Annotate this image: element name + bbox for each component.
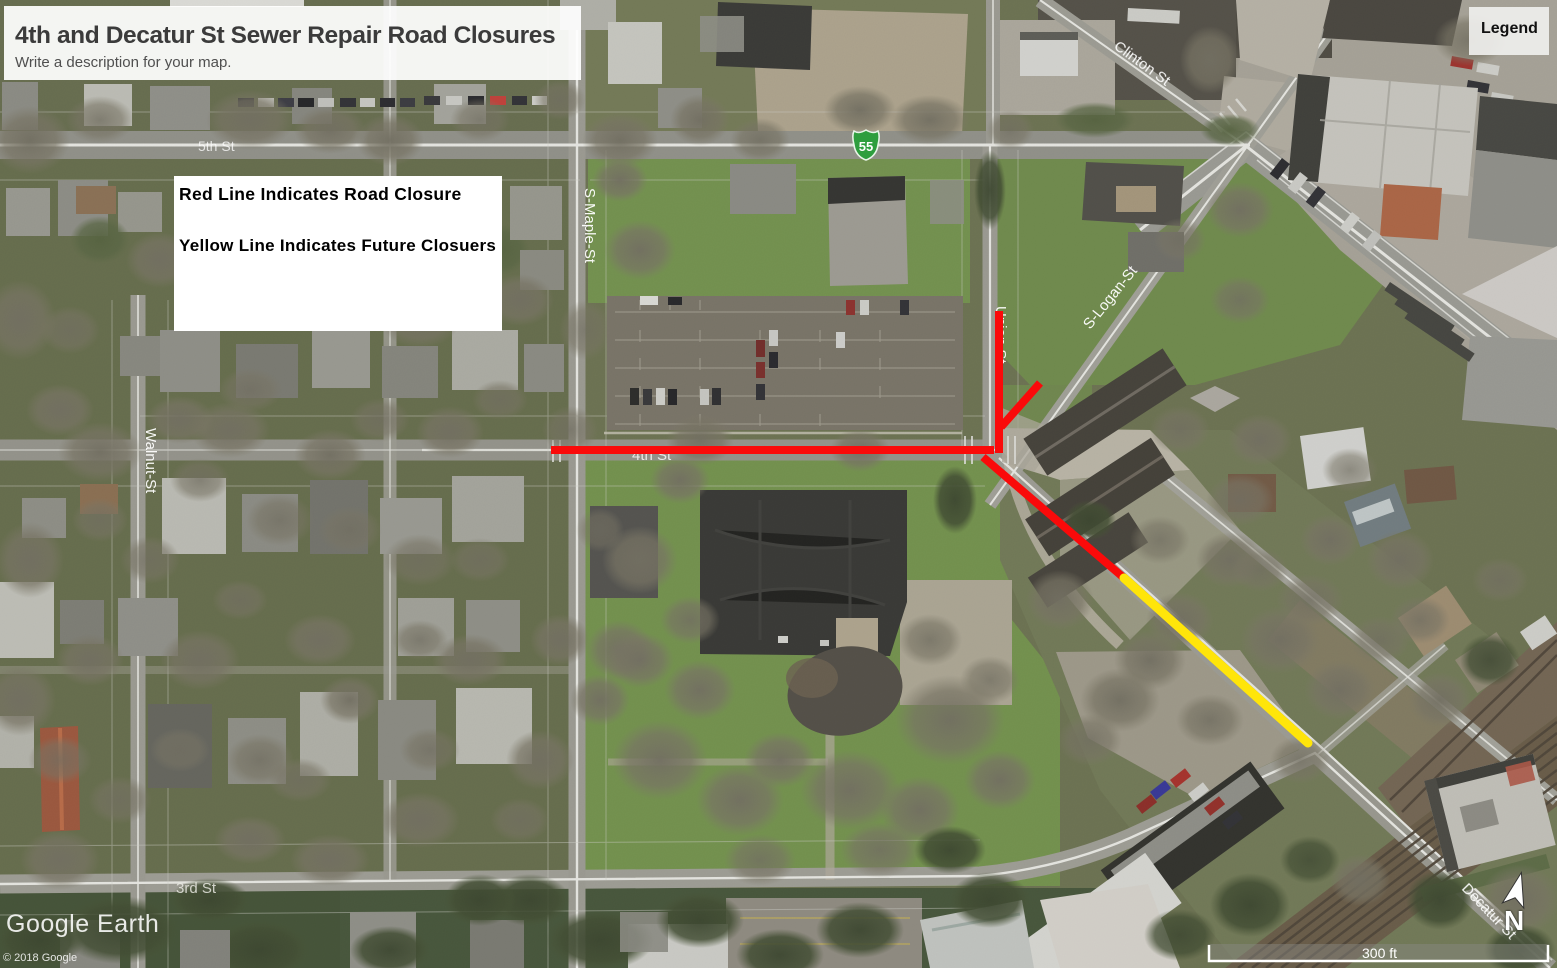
svg-text:Google Earth: Google Earth	[6, 910, 159, 938]
svg-text:S-Maple-St: S-Maple-St	[581, 188, 598, 264]
svg-text:Write a description for your m: Write a description for your map.	[15, 54, 231, 71]
svg-text:5th St: 5th St	[198, 138, 235, 154]
svg-text:Legend: Legend	[1481, 20, 1538, 37]
svg-text:3rd St: 3rd St	[176, 880, 217, 897]
svg-text:N: N	[1504, 905, 1524, 936]
svg-text:© 2018 Google: © 2018 Google	[3, 952, 77, 964]
svg-text:Walnut-St: Walnut-St	[142, 428, 159, 494]
svg-text:300 ft: 300 ft	[1362, 945, 1397, 961]
svg-text:Yellow Line Indicates Future C: Yellow Line Indicates Future Closuers	[179, 236, 496, 255]
svg-text:55: 55	[859, 139, 873, 154]
svg-text:4th and Decatur St Sewer Repai: 4th and Decatur St Sewer Repair Road Clo…	[15, 22, 555, 49]
svg-text:Red Line Indicates Road Closur: Red Line Indicates Road Closure	[179, 184, 462, 204]
